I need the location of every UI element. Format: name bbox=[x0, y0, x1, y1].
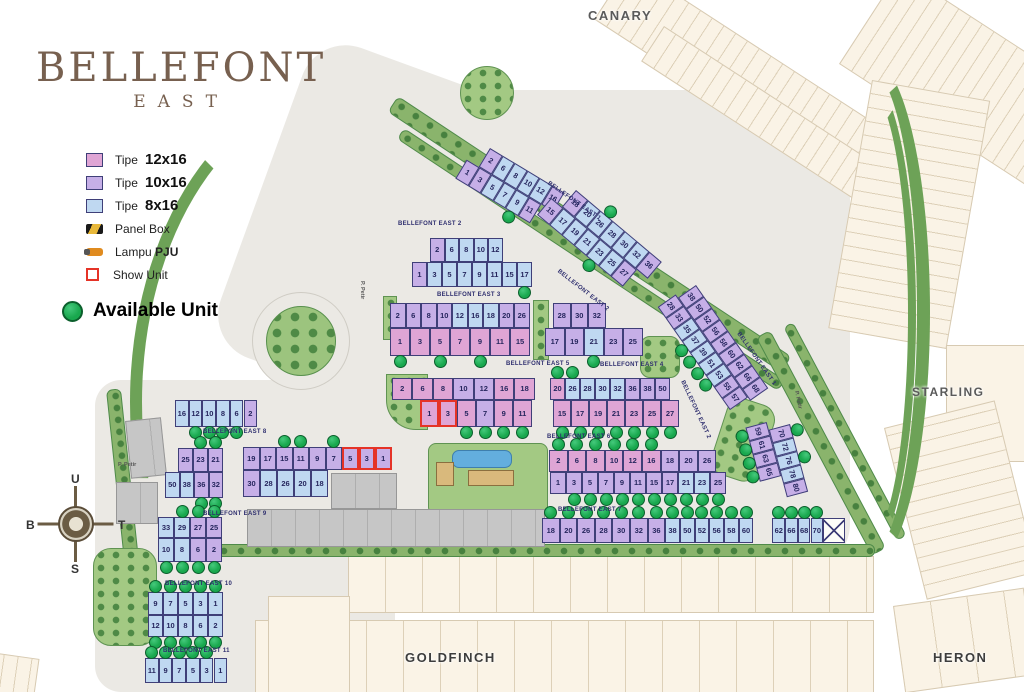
lot-east5-right-28[interactable]: 28 bbox=[580, 378, 595, 400]
legend-row-panel-box: Panel Box bbox=[86, 217, 218, 240]
available-unit-marker[interactable] bbox=[394, 355, 407, 368]
lot-east6-21[interactable]: 21 bbox=[678, 472, 694, 494]
available-unit-marker[interactable] bbox=[566, 366, 579, 379]
lot-east7-18[interactable]: 18 bbox=[542, 518, 560, 543]
lot-east3-left-5[interactable]: 5 bbox=[430, 328, 450, 356]
street-label-bellefont-east-4: BELLEFONT EAST 4 bbox=[600, 362, 663, 368]
legend-row-tipe-8x16: Tipe 8x16 bbox=[86, 194, 218, 217]
lot-east3-left-11[interactable]: 11 bbox=[490, 328, 510, 356]
available-unit-marker[interactable] bbox=[460, 426, 473, 439]
lot-east8-right-5[interactable]: 5 bbox=[342, 447, 359, 470]
lot-east9-8[interactable]: 8 bbox=[174, 538, 190, 562]
lot-east5-left-11[interactable]: 11 bbox=[513, 400, 532, 427]
lot-east8-top-16[interactable]: 16 bbox=[175, 400, 189, 427]
lot-east3-left-8[interactable]: 8 bbox=[421, 303, 437, 328]
neighbor-lots-bottomleft bbox=[0, 652, 40, 692]
compass-rose: U T S B bbox=[30, 478, 122, 570]
swimming-pool bbox=[452, 450, 512, 468]
lot-east11-3[interactable]: 3 bbox=[200, 658, 214, 683]
street-label-bellefont-east-2: BELLEFONT EAST 2 bbox=[398, 221, 461, 227]
available-unit-marker[interactable] bbox=[149, 580, 162, 593]
lot-east3-left-7[interactable]: 7 bbox=[450, 328, 470, 356]
lot-east10-9[interactable]: 9 bbox=[148, 592, 163, 615]
lot-east8-left-38[interactable]: 38 bbox=[180, 472, 195, 498]
lot-east8-top-12[interactable]: 12 bbox=[189, 400, 203, 427]
lot-east10-1[interactable]: 1 bbox=[208, 592, 223, 615]
lot-east2-3[interactable]: 3 bbox=[427, 262, 442, 287]
available-unit-marker[interactable] bbox=[479, 426, 492, 439]
project-subtitle: EAST bbox=[36, 92, 326, 112]
lot-east6-1[interactable]: 1 bbox=[550, 472, 566, 494]
available-unit-marker[interactable] bbox=[712, 493, 725, 506]
available-unit-label: Available Unit bbox=[93, 300, 218, 322]
available-unit-marker[interactable] bbox=[434, 355, 447, 368]
lot-east7-52[interactable]: 52 bbox=[695, 518, 710, 543]
lot-east3-left-20[interactable]: 20 bbox=[499, 303, 515, 328]
lot-east6-9[interactable]: 9 bbox=[614, 472, 630, 494]
lot-east10-7[interactable]: 7 bbox=[163, 592, 178, 615]
lot-east6-17[interactable]: 17 bbox=[662, 472, 678, 494]
lot-east6-5[interactable]: 5 bbox=[582, 472, 598, 494]
panel-box-label: Panel Box bbox=[115, 222, 170, 236]
lot-east5-right-32[interactable]: 32 bbox=[610, 378, 625, 400]
lot-east8-right-9[interactable]: 9 bbox=[309, 447, 326, 470]
lot-east10-2[interactable]: 2 bbox=[208, 615, 223, 637]
lot-east5-right-20[interactable]: 20 bbox=[550, 378, 565, 400]
lot-east3-left-6[interactable]: 6 bbox=[406, 303, 422, 328]
lot-east6-16[interactable]: 16 bbox=[642, 450, 661, 472]
compass-center bbox=[58, 506, 94, 542]
lot-east9-33[interactable]: 33 bbox=[158, 517, 174, 538]
compass-south-label: S bbox=[71, 562, 79, 576]
available-unit-marker[interactable] bbox=[518, 286, 531, 299]
lot-east2-17[interactable]: 17 bbox=[517, 262, 532, 287]
lot-east8-top-2[interactable]: 2 bbox=[244, 400, 258, 427]
lot-east2-7[interactable]: 7 bbox=[457, 262, 472, 287]
available-unit-marker[interactable] bbox=[600, 493, 613, 506]
street-name-starling: STARLING bbox=[912, 385, 984, 399]
available-unit-marker[interactable] bbox=[632, 493, 645, 506]
project-logo: BELLEFONT EAST bbox=[36, 48, 326, 112]
lot-east5-left-1[interactable]: 1 bbox=[420, 400, 439, 427]
legend-row-lampu-pju: Lampu PJU bbox=[86, 240, 218, 263]
lot-east8-right-15[interactable]: 15 bbox=[276, 447, 293, 470]
lot-east7-28[interactable]: 28 bbox=[595, 518, 613, 543]
lot-east2-6[interactable]: 6 bbox=[445, 238, 460, 262]
lot-east3-left-15[interactable]: 15 bbox=[510, 328, 530, 356]
available-unit-marker[interactable] bbox=[616, 493, 629, 506]
available-unit-marker[interactable] bbox=[664, 426, 677, 439]
show-unit-label: Show Unit bbox=[113, 268, 168, 282]
street-label-bellefont-east-7: BELLEFONT EAST 7 bbox=[558, 507, 621, 513]
facility-building bbox=[468, 470, 514, 486]
lot-east10-10[interactable]: 10 bbox=[163, 615, 178, 637]
available-unit-marker[interactable] bbox=[474, 355, 487, 368]
commercial-building-small bbox=[331, 473, 397, 509]
lot-east5-right-15[interactable]: 15 bbox=[553, 400, 571, 427]
lot-east3-left-9[interactable]: 9 bbox=[470, 328, 490, 356]
lot-east5-left-5[interactable]: 5 bbox=[457, 400, 476, 427]
project-title: BELLEFONT bbox=[36, 48, 326, 88]
lot-east5-right-17[interactable]: 17 bbox=[571, 400, 589, 427]
available-unit-marker[interactable] bbox=[176, 561, 189, 574]
lot-east6-20[interactable]: 20 bbox=[679, 450, 698, 472]
lot-east3-right-19[interactable]: 19 bbox=[565, 328, 585, 356]
panel-box-icon bbox=[86, 224, 103, 234]
lot-east7-58[interactable]: 58 bbox=[724, 518, 739, 543]
lot-east6-8[interactable]: 8 bbox=[586, 450, 605, 472]
lot-east3-right-25[interactable]: 25 bbox=[623, 328, 643, 356]
lot-east5-right-23[interactable]: 23 bbox=[625, 400, 643, 427]
tipe-label: Tipe bbox=[115, 199, 145, 213]
available-unit-marker[interactable] bbox=[584, 493, 597, 506]
compass-west-label: B bbox=[26, 518, 35, 532]
lot-east7-60[interactable]: 60 bbox=[739, 518, 754, 543]
existing-building-left1 bbox=[125, 417, 167, 478]
legend-row-tipe-10x16: Tipe 10x16 bbox=[86, 171, 218, 194]
lot-east2-1[interactable]: 1 bbox=[412, 262, 427, 287]
available-unit-marker[interactable] bbox=[278, 435, 291, 448]
lot-east7-56[interactable]: 56 bbox=[709, 518, 724, 543]
lot-east2-11[interactable]: 11 bbox=[487, 262, 502, 287]
lot-east3-left-16[interactable]: 16 bbox=[468, 303, 484, 328]
lot-east6-15[interactable]: 15 bbox=[646, 472, 662, 494]
available-unit-marker[interactable] bbox=[194, 436, 207, 449]
lot-east2-9[interactable]: 9 bbox=[472, 262, 487, 287]
lot-east3-left-18[interactable]: 18 bbox=[483, 303, 499, 328]
lot-east6-25[interactable]: 25 bbox=[710, 472, 726, 494]
lot-east10-6[interactable]: 6 bbox=[193, 615, 208, 637]
lot-east8-right-20[interactable]: 20 bbox=[294, 470, 311, 497]
street-name-heron: HERON bbox=[933, 650, 987, 665]
lot-east8-right-3[interactable]: 3 bbox=[359, 447, 376, 470]
neighbor-lots-goldfinch-row1 bbox=[348, 556, 874, 613]
street-label-bellefont-east-11: BELLEFONT EAST 11 bbox=[163, 648, 230, 654]
lot-east3-left-1[interactable]: 1 bbox=[390, 328, 410, 356]
compass-east-label: T bbox=[118, 518, 125, 532]
park-circle-top bbox=[460, 66, 514, 120]
lot-east3-left-2[interactable]: 2 bbox=[390, 303, 406, 328]
lot-east6-3[interactable]: 3 bbox=[566, 472, 582, 494]
lot-east5-left-6[interactable]: 6 bbox=[412, 378, 432, 400]
available-unit-marker[interactable] bbox=[176, 505, 189, 518]
lot-east11-9[interactable]: 9 bbox=[159, 658, 173, 683]
lot-east8-right-7[interactable]: 7 bbox=[326, 447, 343, 470]
lot-east9-2[interactable]: 2 bbox=[206, 538, 222, 562]
lot-east7-20[interactable]: 20 bbox=[560, 518, 578, 543]
lot-east8-right-26[interactable]: 26 bbox=[277, 470, 294, 497]
lot-east8-top-10[interactable]: 10 bbox=[202, 400, 216, 427]
lot-east10-8[interactable]: 8 bbox=[178, 615, 193, 637]
available-unit-marker[interactable] bbox=[680, 493, 693, 506]
lot-east2-5[interactable]: 5 bbox=[442, 262, 457, 287]
lot-east5-right-30[interactable]: 30 bbox=[595, 378, 610, 400]
lot-east11-5[interactable]: 5 bbox=[186, 658, 200, 683]
available-unit-marker[interactable] bbox=[648, 493, 661, 506]
lot-east6-23[interactable]: 23 bbox=[694, 472, 710, 494]
street-label-bellefont-east-10: BELLEFONT EAST 10 bbox=[165, 581, 232, 587]
legend: Tipe 12x16 Tipe 10x16 Tipe 8x16 Panel Bo… bbox=[86, 148, 218, 322]
available-unit-marker[interactable] bbox=[785, 506, 798, 519]
available-unit-marker[interactable] bbox=[798, 506, 811, 519]
lot-east7-66[interactable]: 66 bbox=[785, 518, 798, 543]
tipe-12x16-swatch bbox=[86, 153, 103, 167]
lot-east5-left-2[interactable]: 2 bbox=[392, 378, 412, 400]
commercial-building-long bbox=[247, 509, 545, 547]
street-label-bellefont-east-3: BELLEFONT EAST 3 bbox=[437, 292, 500, 298]
lot-east8-right-1[interactable]: 1 bbox=[375, 447, 392, 470]
lot-east5-left-18[interactable]: 18 bbox=[514, 378, 534, 400]
lot-east11-11[interactable]: 11 bbox=[145, 658, 159, 683]
lot-east3-right-17[interactable]: 17 bbox=[545, 328, 565, 356]
lot-east2-8[interactable]: 8 bbox=[459, 238, 474, 262]
available-unit-marker[interactable] bbox=[740, 506, 753, 519]
green-patch-4 bbox=[640, 336, 680, 378]
neighbor-lot-large bbox=[268, 596, 350, 692]
lot-east7-32[interactable]: 32 bbox=[630, 518, 648, 543]
lot-east8-left-23[interactable]: 23 bbox=[193, 448, 208, 472]
lot-east6-11[interactable]: 11 bbox=[630, 472, 646, 494]
lot-east3-right-28[interactable]: 28 bbox=[553, 303, 571, 328]
lot-east8-right-17[interactable]: 17 bbox=[260, 447, 277, 470]
street-label-bellefont-east-8: BELLEFONT EAST 8 bbox=[203, 429, 266, 435]
available-unit-marker[interactable] bbox=[628, 426, 641, 439]
legend-row-tipe-12x16: Tipe 12x16 bbox=[86, 148, 218, 171]
lot-east8-top-8[interactable]: 8 bbox=[216, 400, 230, 427]
lot-east3-left-3[interactable]: 3 bbox=[410, 328, 430, 356]
lot-east11-1[interactable]: 1 bbox=[214, 658, 228, 683]
street-name-canary: CANARY bbox=[588, 8, 652, 23]
utility-lot-east7[interactable] bbox=[823, 518, 845, 543]
green-arc-starling-inner bbox=[818, 75, 916, 554]
lampu-pju-icon bbox=[86, 248, 103, 256]
show-unit-icon bbox=[86, 268, 99, 281]
lot-east2-12[interactable]: 12 bbox=[488, 238, 503, 262]
lot-east7-68[interactable]: 68 bbox=[798, 518, 811, 543]
lot-east9-29[interactable]: 29 bbox=[174, 517, 190, 538]
lot-east5-left-9[interactable]: 9 bbox=[494, 400, 513, 427]
lot-east8-right-30[interactable]: 30 bbox=[243, 470, 260, 497]
legend-row-show-unit: Show Unit bbox=[86, 263, 218, 286]
lot-east8-top-6[interactable]: 6 bbox=[230, 400, 244, 427]
lot-east10-3[interactable]: 3 bbox=[193, 592, 208, 615]
lot-east6-18[interactable]: 18 bbox=[661, 450, 680, 472]
lot-east10-12[interactable]: 12 bbox=[148, 615, 163, 637]
lot-east5-right-38[interactable]: 38 bbox=[640, 378, 655, 400]
siteplan-map: 2681012161357911182026283032361517192123… bbox=[0, 0, 1024, 692]
available-unit-marker[interactable] bbox=[696, 493, 709, 506]
lot-east5-right-36[interactable]: 36 bbox=[625, 378, 640, 400]
available-unit-marker[interactable] bbox=[725, 506, 738, 519]
lot-east5-left-7[interactable]: 7 bbox=[476, 400, 495, 427]
street-label-bellefont-east-9: BELLEFONT EAST 9 bbox=[203, 511, 266, 517]
available-unit-marker[interactable] bbox=[666, 506, 679, 519]
street-name-goldfinch: GOLDFINCH bbox=[405, 650, 496, 665]
lot-east11-7[interactable]: 7 bbox=[172, 658, 186, 683]
lot-east8-left-50[interactable]: 50 bbox=[165, 472, 180, 498]
tipe-12x16-size: 12x16 bbox=[145, 151, 187, 168]
lot-east3-left-12[interactable]: 12 bbox=[452, 303, 468, 328]
lot-east6-2[interactable]: 2 bbox=[549, 450, 568, 472]
clubhouse-building bbox=[436, 462, 454, 486]
lot-east7-26[interactable]: 26 bbox=[577, 518, 595, 543]
lot-east8-right-11[interactable]: 11 bbox=[293, 447, 310, 470]
legend-row-available-unit: Available Unit bbox=[62, 300, 218, 322]
available-unit-marker[interactable] bbox=[209, 436, 222, 449]
lot-east8-right-19[interactable]: 19 bbox=[243, 447, 260, 470]
available-unit-marker[interactable] bbox=[681, 506, 694, 519]
available-unit-marker[interactable] bbox=[645, 438, 658, 451]
available-unit-marker[interactable] bbox=[610, 426, 623, 439]
lot-east9-10[interactable]: 10 bbox=[158, 538, 174, 562]
available-unit-marker[interactable] bbox=[208, 561, 221, 574]
street-label-bellefont-east-5: BELLEFONT EAST 5 bbox=[506, 361, 569, 367]
lot-east8-left-36[interactable]: 36 bbox=[194, 472, 209, 498]
tipe-8x16-size: 8x16 bbox=[145, 197, 178, 214]
lot-east8-right-18[interactable]: 18 bbox=[311, 470, 328, 497]
lot-east5-right-19[interactable]: 19 bbox=[589, 400, 607, 427]
available-unit-icon bbox=[62, 301, 83, 322]
lot-east6-12[interactable]: 12 bbox=[623, 450, 642, 472]
lot-east6-10[interactable]: 10 bbox=[605, 450, 624, 472]
lot-east3-left-26[interactable]: 26 bbox=[514, 303, 530, 328]
street-label-bellefont-east-6: BELLEFONT EAST 6 bbox=[547, 434, 610, 440]
tipe-8x16-swatch bbox=[86, 199, 103, 213]
lot-east5-right-25[interactable]: 25 bbox=[643, 400, 661, 427]
lot-east9-6[interactable]: 6 bbox=[190, 538, 206, 562]
tipe-label: Tipe bbox=[115, 153, 145, 167]
lot-east2-10[interactable]: 10 bbox=[474, 238, 489, 262]
lot-east7-30[interactable]: 30 bbox=[612, 518, 630, 543]
lot-east7-50[interactable]: 50 bbox=[680, 518, 695, 543]
lot-east9-27[interactable]: 27 bbox=[190, 517, 206, 538]
lot-east8-left-21[interactable]: 21 bbox=[208, 448, 223, 472]
lot-east5-left-8[interactable]: 8 bbox=[433, 378, 453, 400]
available-unit-marker[interactable] bbox=[664, 493, 677, 506]
lot-east6-7[interactable]: 7 bbox=[598, 472, 614, 494]
lot-east3-right-30[interactable]: 30 bbox=[571, 303, 589, 328]
lot-east7-70[interactable]: 70 bbox=[811, 518, 824, 543]
lot-east7-62[interactable]: 62 bbox=[772, 518, 785, 543]
available-unit-marker[interactable] bbox=[516, 426, 529, 439]
lot-east2-2[interactable]: 2 bbox=[430, 238, 445, 262]
lot-east5-left-3[interactable]: 3 bbox=[439, 400, 458, 427]
lot-east5-left-12[interactable]: 12 bbox=[474, 378, 494, 400]
tipe-10x16-size: 10x16 bbox=[145, 174, 187, 191]
available-unit-marker[interactable] bbox=[568, 493, 581, 506]
lot-east3-right-23[interactable]: 23 bbox=[604, 328, 624, 356]
lot-east5-right-21[interactable]: 21 bbox=[607, 400, 625, 427]
lot-east5-left-10[interactable]: 10 bbox=[453, 378, 473, 400]
available-unit-marker[interactable] bbox=[192, 561, 205, 574]
small-label-p-petir: P. Petir bbox=[118, 462, 136, 468]
lot-east7-36[interactable]: 36 bbox=[648, 518, 666, 543]
compass-north-label: U bbox=[71, 472, 80, 486]
lot-east5-left-16[interactable]: 16 bbox=[494, 378, 514, 400]
lot-east2-15[interactable]: 15 bbox=[502, 262, 517, 287]
lot-east8-right-28[interactable]: 28 bbox=[260, 470, 277, 497]
small-label-p-petir: P. Petir bbox=[359, 281, 365, 299]
roundabout-island bbox=[266, 306, 336, 376]
lot-east5-right-27[interactable]: 27 bbox=[661, 400, 679, 427]
tipe-10x16-swatch bbox=[86, 176, 103, 190]
lot-east5-right-26[interactable]: 26 bbox=[565, 378, 580, 400]
lot-east6-26[interactable]: 26 bbox=[698, 450, 717, 472]
lot-east8-left-25[interactable]: 25 bbox=[178, 448, 193, 472]
tipe-label: Tipe bbox=[115, 176, 145, 190]
lot-east9-25[interactable]: 25 bbox=[206, 517, 222, 538]
lot-east7-38[interactable]: 38 bbox=[665, 518, 680, 543]
lot-east3-right-21[interactable]: 21 bbox=[584, 328, 604, 356]
lot-east5-right-50[interactable]: 50 bbox=[655, 378, 670, 400]
lot-east10-5[interactable]: 5 bbox=[178, 592, 193, 615]
available-unit-marker[interactable] bbox=[551, 366, 564, 379]
lampu-label: Lampu PJU bbox=[115, 245, 178, 259]
lot-east8-left-32[interactable]: 32 bbox=[209, 472, 224, 498]
neighbor-lots-heron bbox=[893, 588, 1024, 692]
available-unit-marker[interactable] bbox=[160, 561, 173, 574]
lot-east3-left-10[interactable]: 10 bbox=[437, 303, 453, 328]
lot-east6-6[interactable]: 6 bbox=[568, 450, 587, 472]
available-unit-marker[interactable] bbox=[650, 506, 663, 519]
